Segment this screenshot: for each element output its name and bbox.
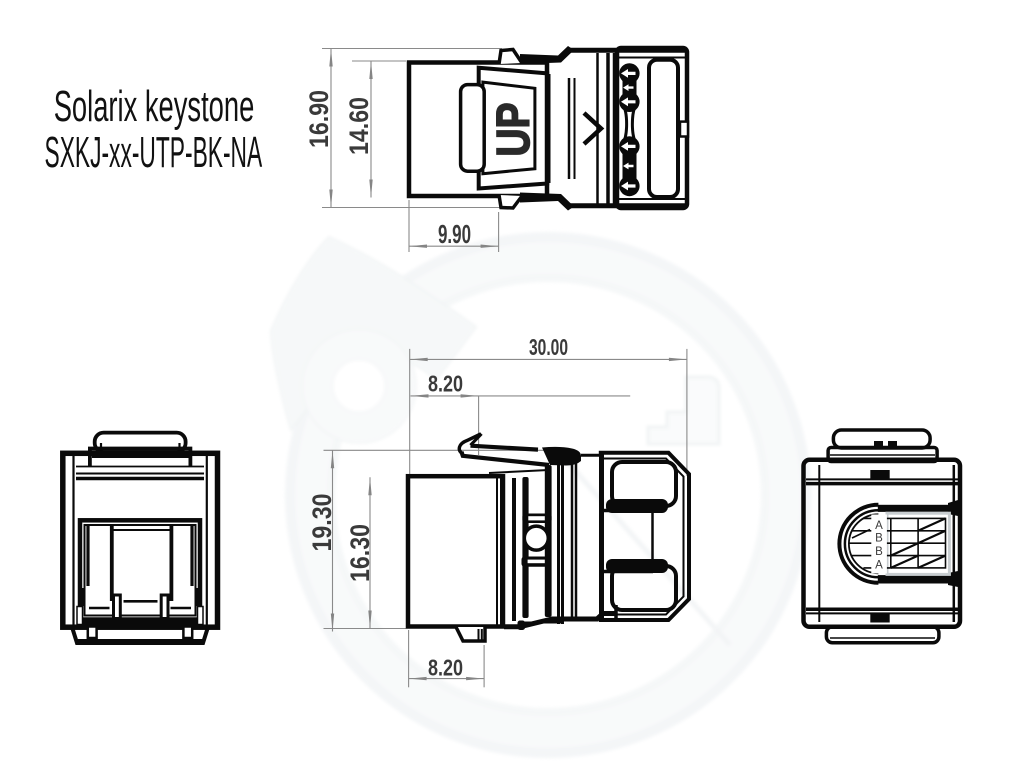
svg-text:UP: UP (487, 103, 539, 157)
svg-text:19.30: 19.30 (307, 494, 337, 552)
svg-text:16.90: 16.90 (304, 90, 334, 148)
svg-text:B: B (875, 533, 883, 545)
svg-text:A: A (875, 520, 883, 532)
svg-text:8.20: 8.20 (428, 655, 463, 681)
svg-text:9.90: 9.90 (438, 219, 471, 249)
svg-text:16.30: 16.30 (345, 524, 375, 582)
svg-text:Solarix keystone: Solarix keystone (54, 82, 255, 131)
svg-text:SXKJ-xx-UTP-BK-NA: SXKJ-xx-UTP-BK-NA (45, 128, 263, 177)
svg-text:B: B (875, 546, 883, 558)
svg-text:14.60: 14.60 (344, 97, 374, 155)
svg-text:A: A (875, 560, 883, 572)
svg-text:8.20: 8.20 (428, 371, 463, 397)
svg-text:30.00: 30.00 (529, 334, 568, 360)
